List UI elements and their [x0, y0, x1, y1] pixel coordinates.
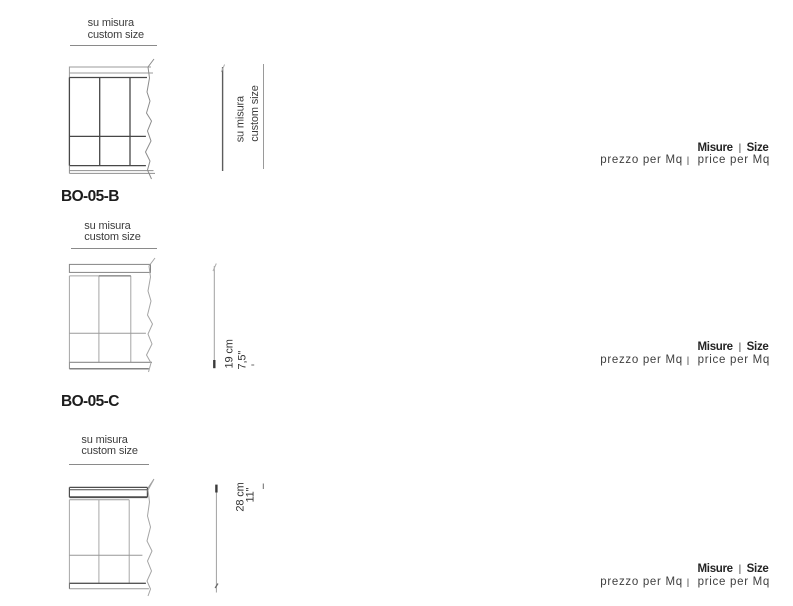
svg-text:19 cm: 19 cm [224, 339, 236, 368]
svg-text:custom size: custom size [249, 85, 261, 141]
svg-text:7,5": 7,5" [237, 351, 249, 370]
svg-text:11": 11" [244, 487, 256, 502]
svg-text:su misura: su misura [235, 95, 247, 142]
